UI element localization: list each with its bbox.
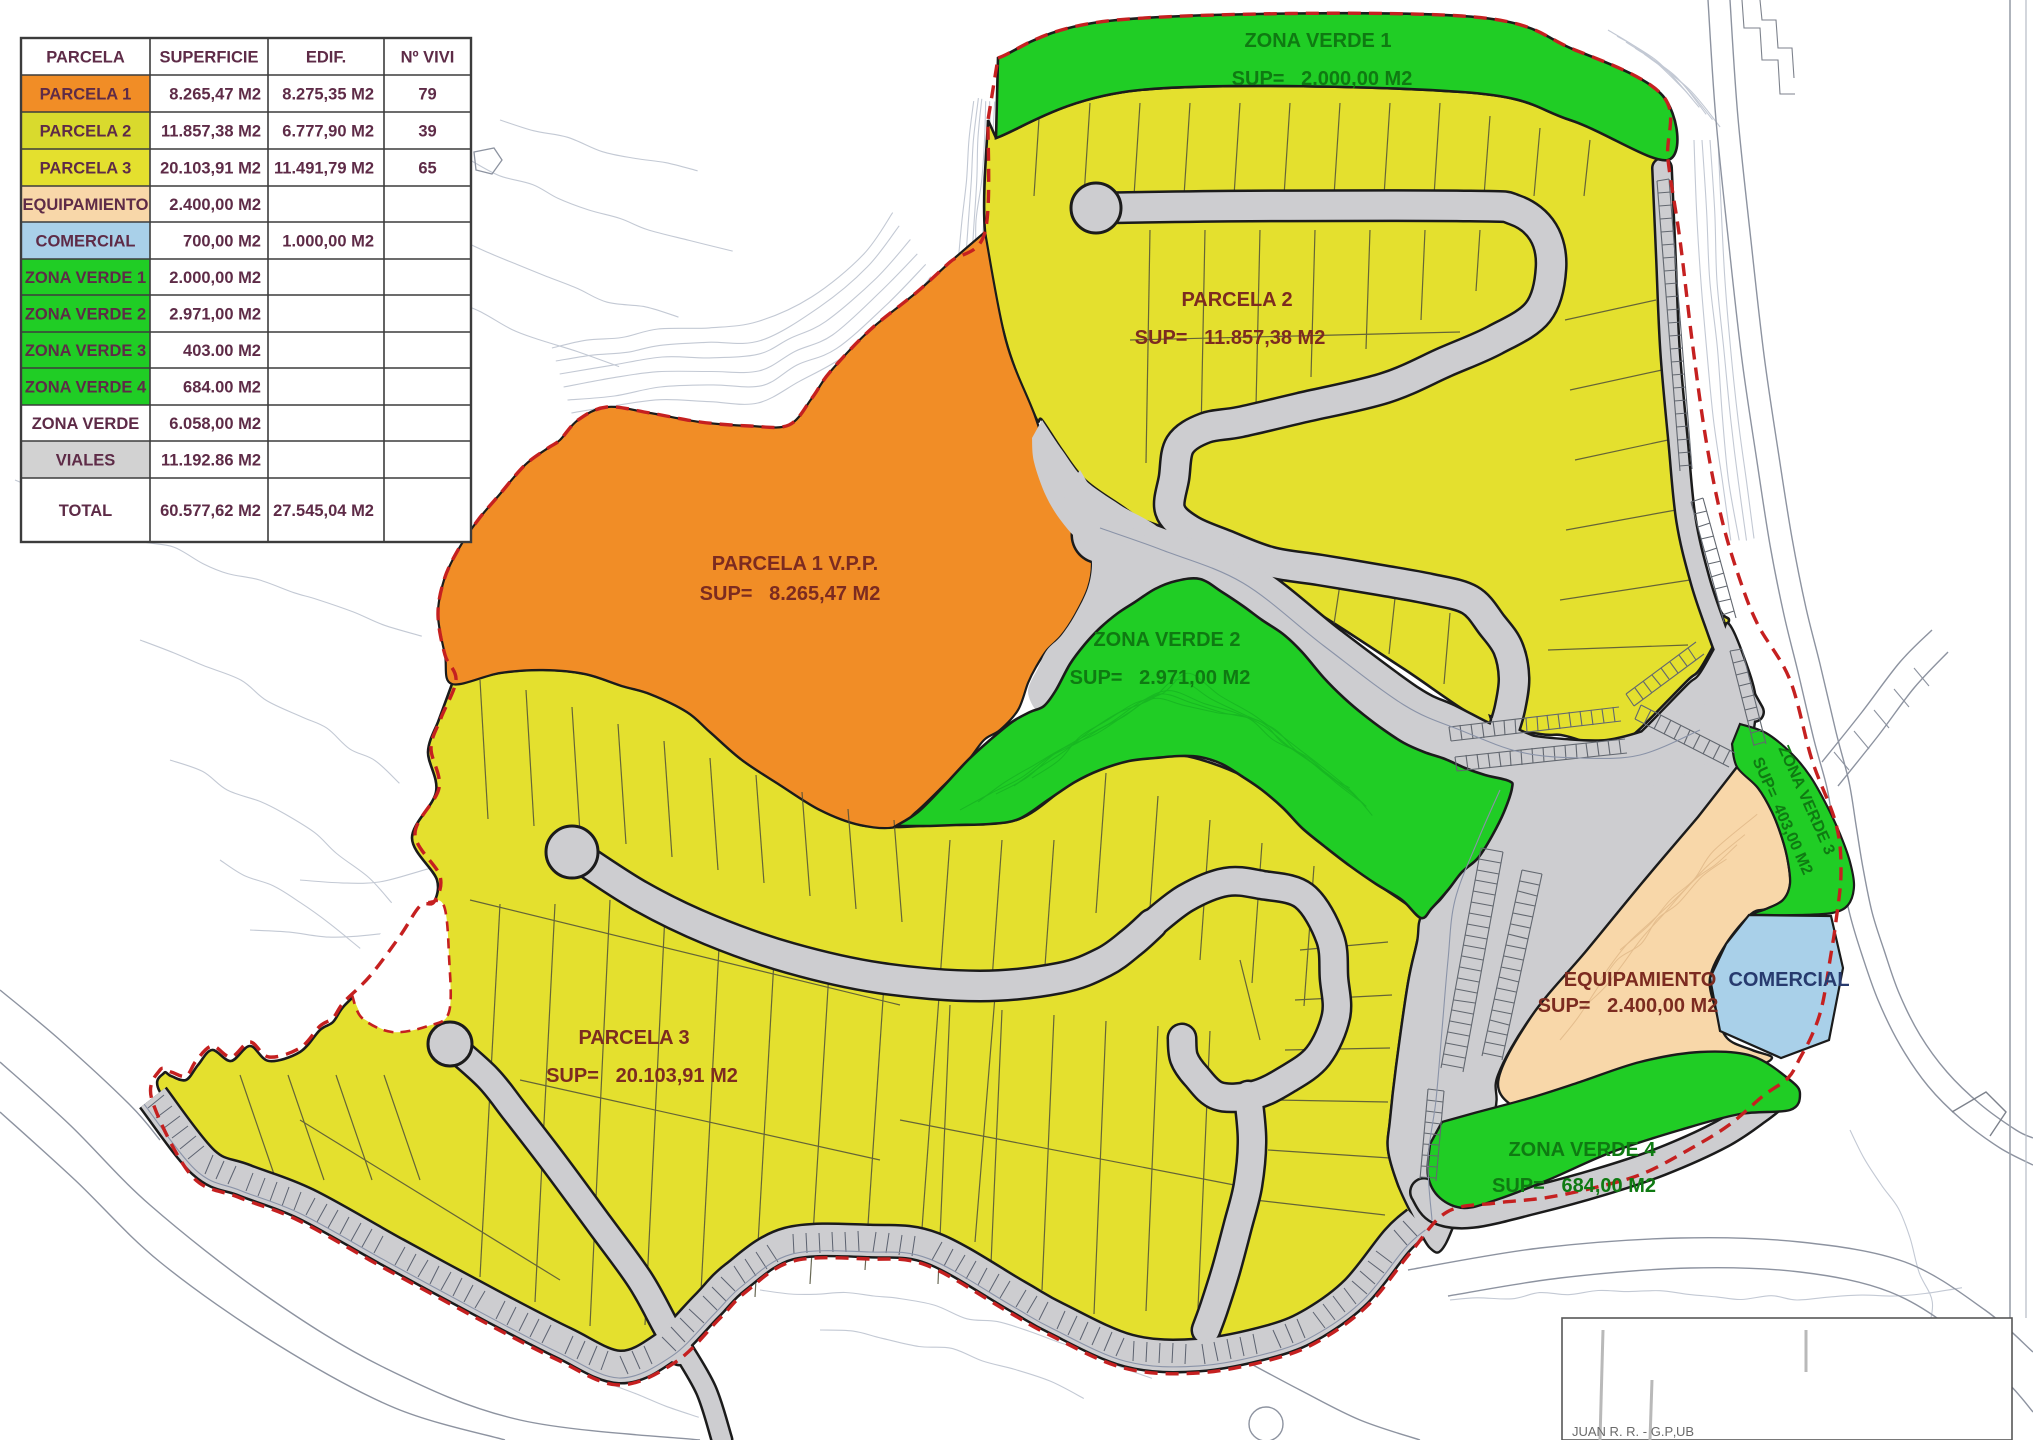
svg-text:SUPERFICIE: SUPERFICIE xyxy=(159,49,258,67)
svg-text:8.275,35 M2: 8.275,35 M2 xyxy=(282,86,374,104)
svg-text:ZONA VERDE 1: ZONA VERDE 1 xyxy=(25,269,146,287)
svg-text:8.265,47 M2: 8.265,47 M2 xyxy=(169,86,261,104)
svg-text:SUP= 8.265,47 M2: SUP= 8.265,47 M2 xyxy=(700,583,881,605)
svg-text:11.491,79 M2: 11.491,79 M2 xyxy=(274,160,374,178)
svg-text:SUP= 684,00 M2: SUP= 684,00 M2 xyxy=(1492,1175,1656,1197)
svg-text:11.857,38 M2: 11.857,38 M2 xyxy=(161,123,261,141)
svg-text:2.000,00 M2: 2.000,00 M2 xyxy=(169,269,261,287)
svg-text:11.192.86 M2: 11.192.86 M2 xyxy=(161,452,261,470)
svg-text:COMERCIAL: COMERCIAL xyxy=(36,233,136,251)
svg-text:39: 39 xyxy=(418,123,436,141)
svg-text:PARCELA 2: PARCELA 2 xyxy=(1181,289,1292,311)
svg-text:1.000,00 M2: 1.000,00 M2 xyxy=(282,233,374,251)
svg-text:PARCELA 1 V.P.P.: PARCELA 1 V.P.P. xyxy=(712,553,878,575)
svg-text:SUP= 2.971,00 M2: SUP= 2.971,00 M2 xyxy=(1070,667,1251,689)
svg-text:Nº VIVI: Nº VIVI xyxy=(401,49,455,67)
svg-text:PARCELA: PARCELA xyxy=(46,49,125,67)
svg-text:65: 65 xyxy=(418,160,436,178)
svg-text:EQUIPAMIENTO: EQUIPAMIENTO xyxy=(1564,969,1717,991)
svg-text:ZONA VERDE 4: ZONA VERDE 4 xyxy=(1508,1139,1656,1161)
svg-text:ZONA VERDE 3: ZONA VERDE 3 xyxy=(25,342,146,360)
svg-text:EDIF.: EDIF. xyxy=(306,49,346,67)
svg-text:PARCELA 3: PARCELA 3 xyxy=(40,160,132,178)
svg-text:ZONA VERDE 4: ZONA VERDE 4 xyxy=(25,379,147,397)
svg-text:PARCELA 1: PARCELA 1 xyxy=(40,86,132,104)
svg-text:VIALES: VIALES xyxy=(56,452,116,470)
svg-text:6.058,00 M2: 6.058,00 M2 xyxy=(169,415,261,433)
svg-text:ZONA VERDE 2: ZONA VERDE 2 xyxy=(25,306,146,324)
svg-text:700,00 M2: 700,00 M2 xyxy=(183,233,261,251)
svg-text:60.577,62 M2: 60.577,62 M2 xyxy=(160,502,261,520)
svg-text:ZONA VERDE: ZONA VERDE xyxy=(32,415,140,433)
svg-text:SUP= 2.400,00 M2: SUP= 2.400,00 M2 xyxy=(1538,995,1719,1017)
svg-text:20.103,91 M2: 20.103,91 M2 xyxy=(160,160,261,178)
svg-text:2.971,00 M2: 2.971,00 M2 xyxy=(169,306,261,324)
svg-text:2.400,00 M2: 2.400,00 M2 xyxy=(169,196,261,214)
svg-text:6.777,90 M2: 6.777,90 M2 xyxy=(282,123,374,141)
svg-text:ZONA VERDE 2: ZONA VERDE 2 xyxy=(1093,629,1240,651)
svg-text:403.00 M2: 403.00 M2 xyxy=(183,342,261,360)
svg-text:PARCELA 2: PARCELA 2 xyxy=(40,123,132,141)
svg-text:684.00 M2: 684.00 M2 xyxy=(183,379,261,397)
svg-text:SUP= 2.000,00 M2: SUP= 2.000,00 M2 xyxy=(1232,68,1413,90)
svg-text:JUAN R. R. - G.P‚UB: JUAN R. R. - G.P‚UB xyxy=(1572,1424,1694,1439)
svg-text:PARCELA 3: PARCELA 3 xyxy=(578,1027,689,1049)
svg-text:79: 79 xyxy=(418,86,436,104)
svg-text:ZONA VERDE 1: ZONA VERDE 1 xyxy=(1244,30,1391,52)
svg-text:TOTAL: TOTAL xyxy=(59,502,112,520)
svg-text:SUP= 11.857,38 M2: SUP= 11.857,38 M2 xyxy=(1135,327,1326,349)
svg-text:27.545,04 M2: 27.545,04 M2 xyxy=(273,502,374,520)
svg-text:SUP= 20.103,91 M2: SUP= 20.103,91 M2 xyxy=(546,1065,738,1087)
svg-text:EQUIPAMIENTO: EQUIPAMIENTO xyxy=(23,196,149,214)
svg-text:COMERCIAL: COMERCIAL xyxy=(1728,969,1849,991)
